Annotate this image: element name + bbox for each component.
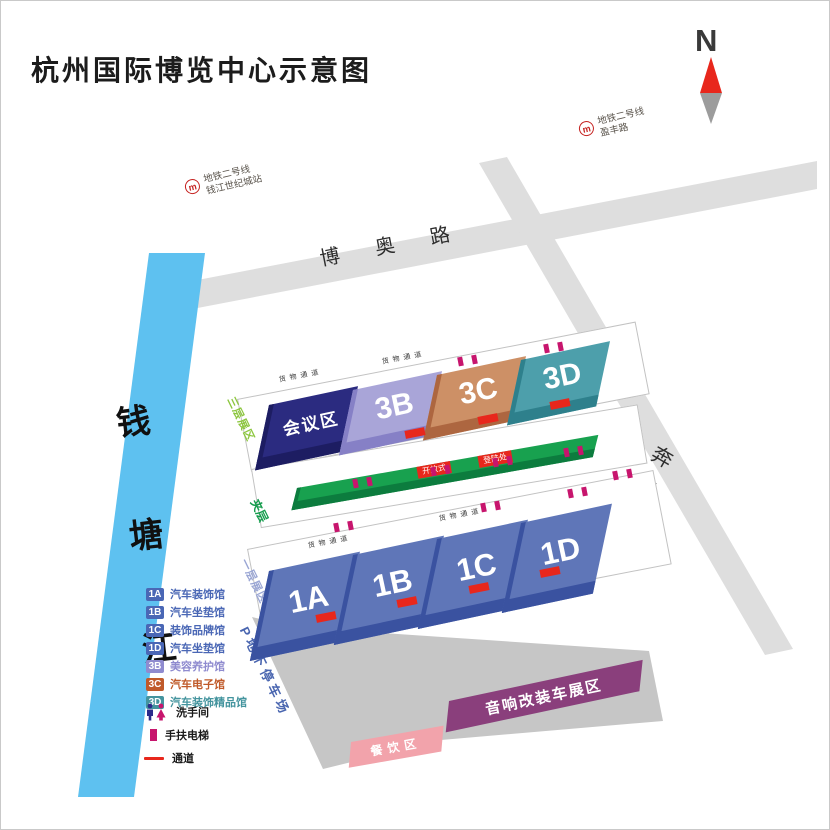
- legend-row: 1D 汽车坐垫馆: [146, 640, 247, 656]
- legend-name: 美容养护馆: [170, 658, 225, 674]
- legend-badge: 1A: [146, 588, 164, 601]
- metro-icon: m: [577, 120, 595, 138]
- hall-1c-label: 1C: [454, 546, 500, 589]
- legend-row-passage: 通道: [144, 749, 209, 767]
- legend-name: 汽车装饰馆: [170, 586, 225, 602]
- legend-badge: 3C: [146, 678, 164, 691]
- legend-row-restroom: 洗手间: [144, 703, 209, 721]
- legend-name: 汽车坐垫馆: [170, 640, 225, 656]
- restroom-icon: [144, 703, 168, 721]
- compass-needle-tail: [700, 93, 722, 124]
- escalator-icon: [150, 729, 157, 741]
- symbol-legend: 洗手间 手扶电梯 通道: [144, 703, 209, 772]
- legend-row: 1B 汽车坐垫馆: [146, 604, 247, 620]
- metro-icon: m: [183, 178, 201, 196]
- compass-north-label: N: [695, 23, 717, 59]
- hall-conference-label: 会议区: [280, 404, 341, 440]
- hall-3d-label: 3D: [540, 356, 585, 397]
- hall-3b-label: 3B: [372, 386, 417, 427]
- legend-row: 1A 汽车装饰馆: [146, 586, 247, 602]
- compass-needle-icon: [700, 57, 722, 93]
- legend-row: 1C 装饰品牌馆: [146, 622, 247, 638]
- dining-zone-label: 餐饮区: [370, 734, 423, 760]
- page-title: 杭州国际博览中心示意图: [31, 49, 372, 89]
- legend-badge: 3B: [146, 660, 164, 673]
- legend-badge: 1C: [146, 624, 164, 637]
- legend-name: 汽车坐垫馆: [170, 604, 225, 620]
- legend-badge: 1D: [146, 642, 164, 655]
- hall-legend: 1A 汽车装饰馆 1B 汽车坐垫馆 1C 装饰品牌馆 1D 汽车坐垫馆 3B 美…: [146, 586, 247, 712]
- hall-3c-label: 3C: [456, 371, 501, 412]
- legend-row: 3B 美容养护馆: [146, 658, 247, 674]
- expo-map: 杭州国际博览中心示意图 N m 地铁二号线 盈丰路 m 地铁二号线 钱江世纪城站…: [0, 0, 830, 830]
- legend-name: 汽车电子馆: [170, 676, 225, 692]
- legend-name: 装饰品牌馆: [170, 622, 225, 638]
- escalator-label: 手扶电梯: [165, 727, 209, 743]
- legend-badge: 1B: [146, 606, 164, 619]
- hall-1d-label: 1D: [538, 530, 584, 573]
- restroom-label: 洗手间: [176, 704, 209, 720]
- legend-row: 3C 汽车电子馆: [146, 676, 247, 692]
- passage-icon: [144, 757, 164, 760]
- passage-label: 通道: [172, 750, 194, 766]
- legend-row-escalator: 手扶电梯: [144, 726, 209, 744]
